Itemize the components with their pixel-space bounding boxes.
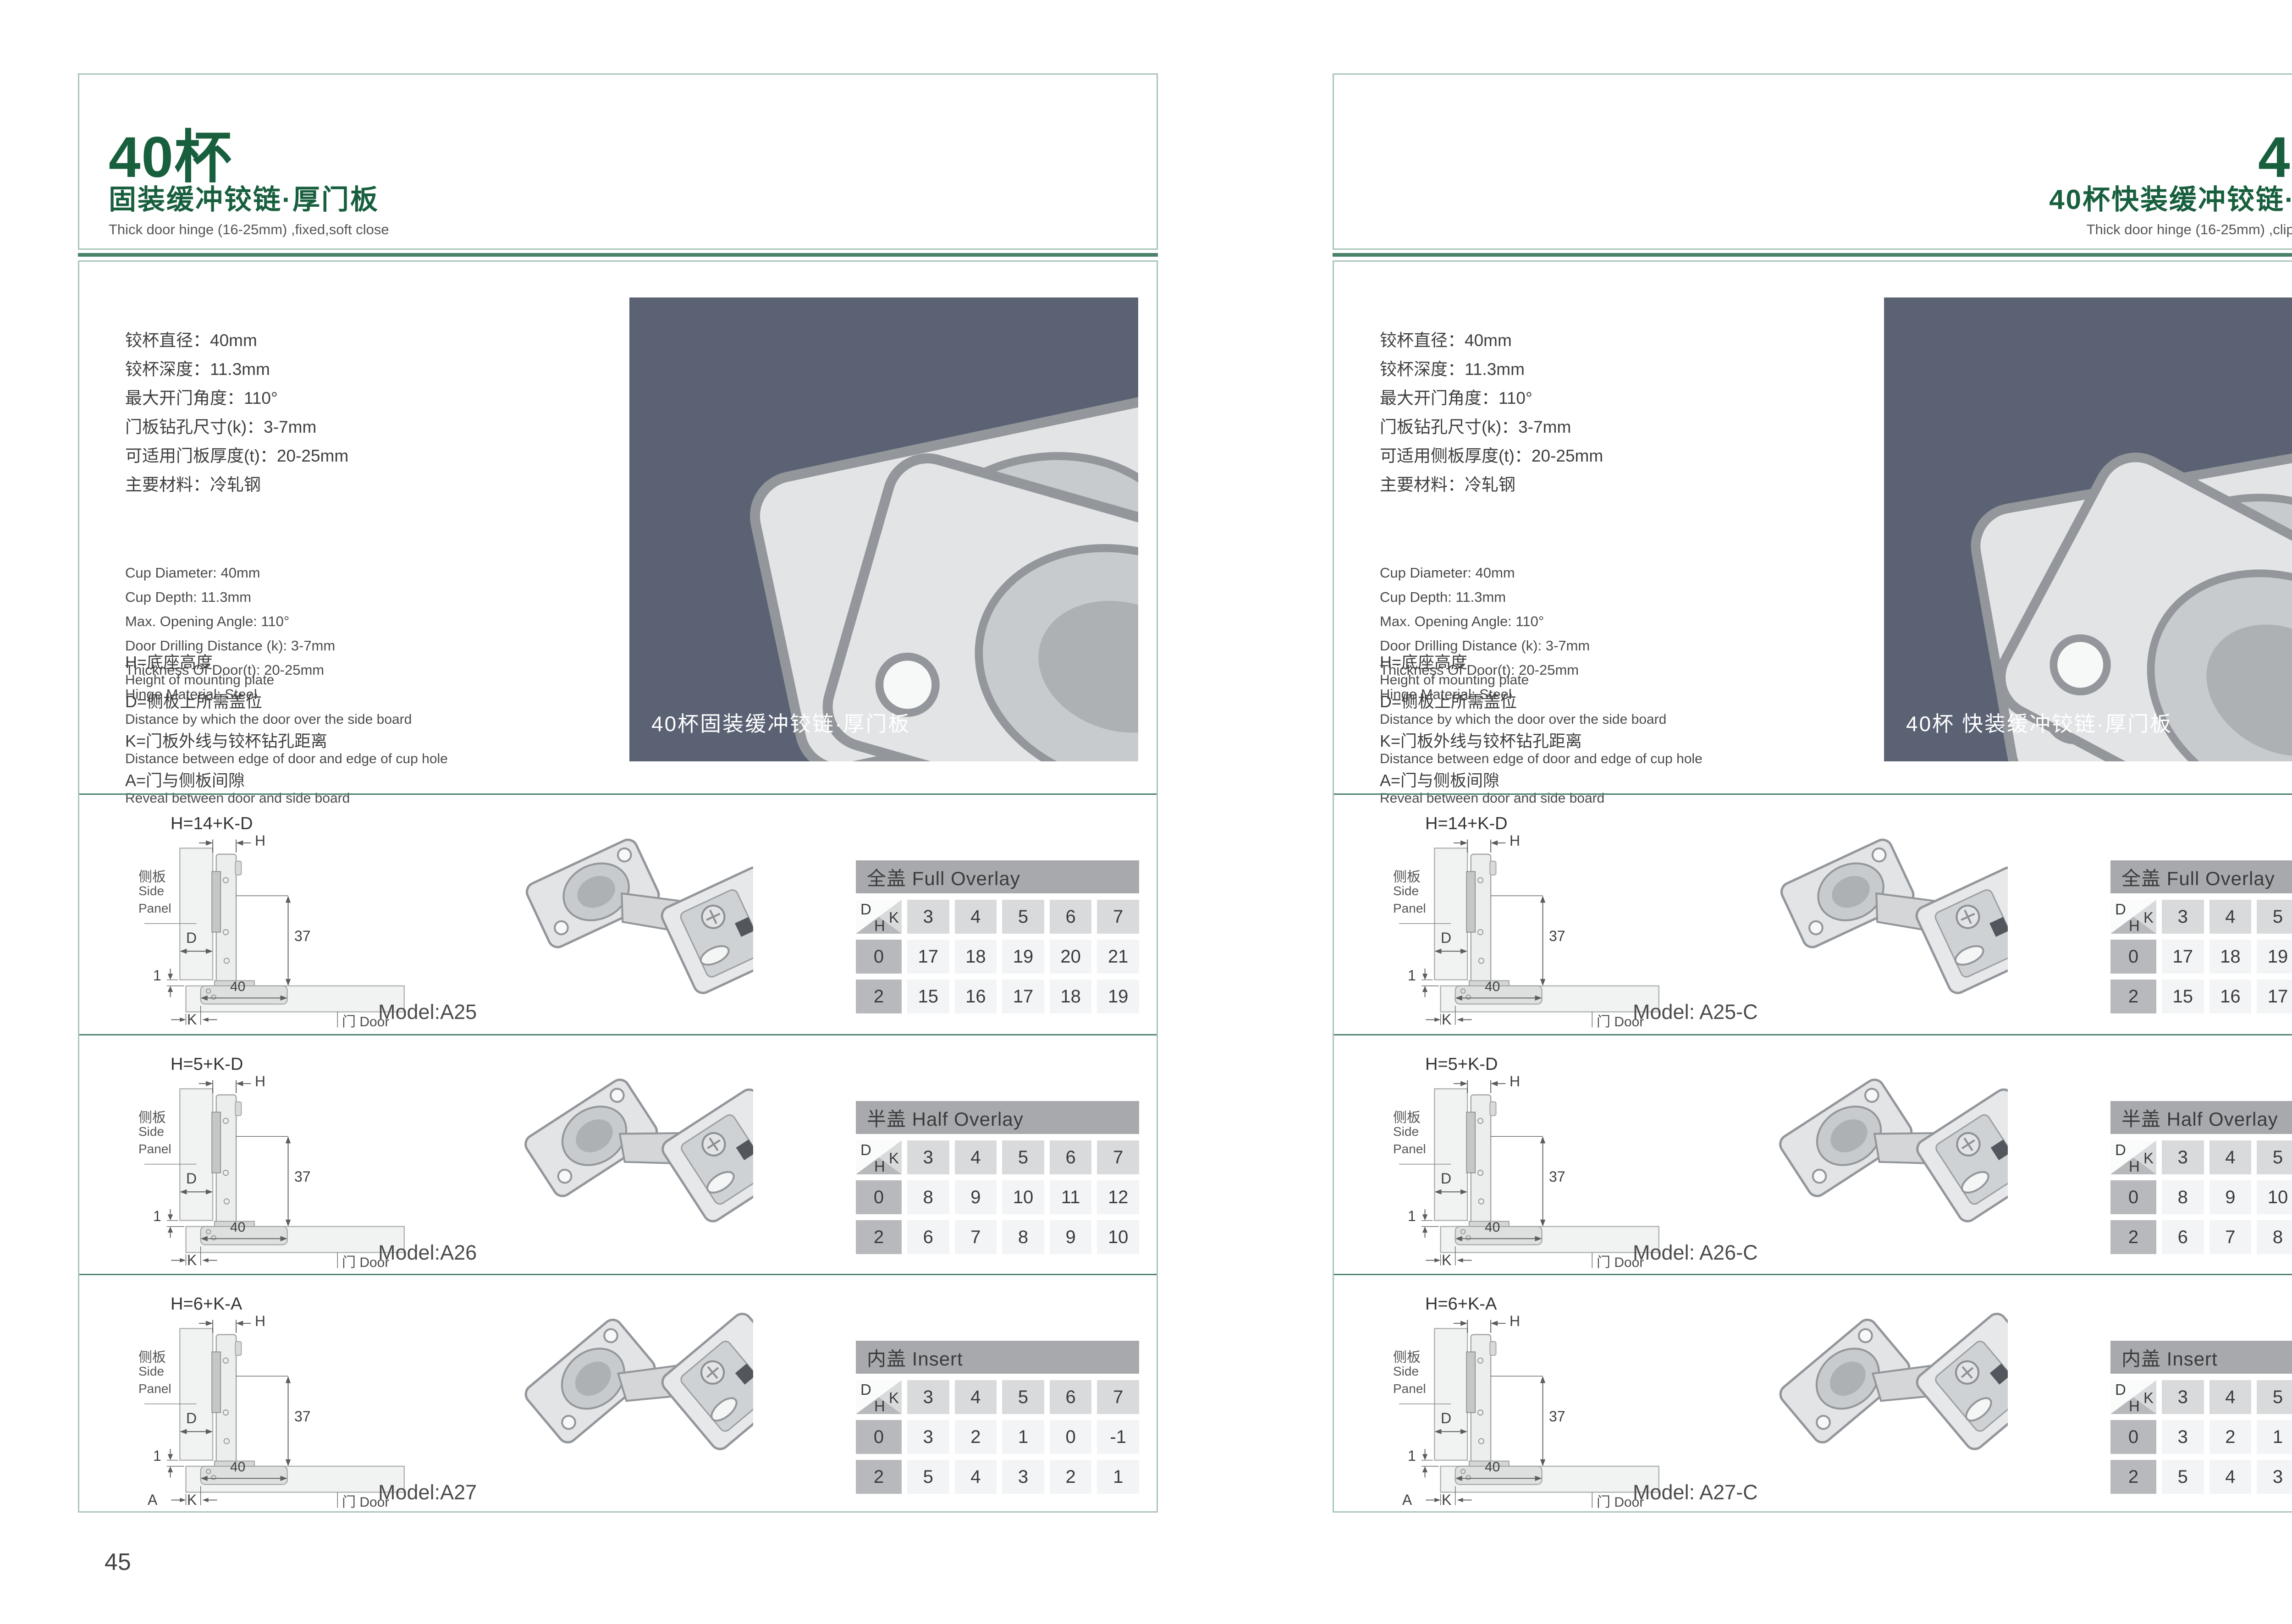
dim-d-label: D [1441,1410,1451,1427]
dim-h-label: H [1510,832,1520,849]
table-title: 全盖 Full Overlay [856,860,1139,893]
table-title: 全盖 Full Overlay [2110,860,2292,893]
table-value-cell: 18 [1050,980,1092,1013]
model-label: Model: A25-C [1633,1000,1758,1024]
table-value-cell: 2 [1050,1460,1092,1494]
legend-description: Height of mounting plate [125,672,620,688]
spec-line-cn: 最大开门角度：110° [1380,384,1603,413]
side-panel-label-en1: Side [138,884,164,898]
table-row-label: 0 [2110,940,2156,974]
spec-line-cn: 主要材料：冷轧钢 [1380,470,1603,499]
corner-k-label: K [889,909,899,926]
page-content: 铰杯直径：40mm铰杯深度：11.3mm最大开门角度：110°门板钻孔尺寸(k)… [1333,260,2292,1513]
dimension-legend: H=底座高度Height of mounting plateD=侧板上所需盖位D… [125,649,620,807]
table-value-cell: 21 [1097,940,1139,974]
dim-k-label: K [1442,1011,1451,1028]
product-row: H=14+K-D H 37 D 1 40 K 门 Door 侧板 Side Pa… [79,795,1157,1034]
dim-37-label: 37 [294,1408,311,1425]
header-rule [1333,253,2292,257]
table-value-cell: 1 [1097,1460,1139,1494]
table-row-label: 0 [856,940,902,974]
table-value-cell: 20 [1050,940,1092,974]
table-col-header: 7 [1097,900,1139,934]
corner-h-label: H [874,1158,885,1175]
side-panel-label-en1: Side [138,1124,164,1139]
product-photo: 40杯 快装缓冲铰链·厚门板 [1884,297,2292,761]
dim-1-label: 1 [153,1448,161,1464]
side-panel-label-en2: Panel [1393,1142,1426,1156]
table-value-cell: 8 [2162,1180,2204,1214]
legend-term: D=侧板上所需盖位 [125,693,620,711]
table-row-label: 2 [856,980,902,1013]
table-row-label: 0 [856,1180,902,1214]
dim-37-label: 37 [1549,1168,1565,1185]
table-col-header: 7 [1097,1380,1139,1414]
table-value-cell: 6 [907,1220,949,1254]
dim-h-label: H [255,832,265,849]
page-number: 45 [105,1548,131,1576]
diagram-formula: H=5+K-D [171,1055,243,1074]
side-panel-label-cn: 侧板 [138,865,166,886]
photo-caption: 40杯固装缓冲铰链·厚门板 [651,707,910,738]
side-panel-label-cn: 侧板 [138,1346,166,1366]
legend-term: K=门板外线与铰杯钻孔距离 [125,732,620,750]
table-corner-cell: DKH [856,1140,902,1174]
dim-d-label: D [1441,1170,1451,1187]
side-panel-label-en1: Side [1393,1124,1419,1139]
table-value-cell: 4 [955,1460,997,1494]
dim-1-label: 1 [1408,1208,1416,1225]
table-row-label: 2 [856,1220,902,1254]
table-value-cell: 17 [2257,980,2292,1013]
spec-line-cn: 可适用门板厚度(t)：20-25mm [125,441,348,470]
table-value-cell: 7 [2209,1220,2252,1254]
dim-37-label: 37 [294,928,311,945]
table-value-cell: 0 [1050,1420,1092,1454]
dim-40-label: 40 [230,979,245,995]
table-value-cell: 3 [907,1420,949,1454]
table-row-label: 2 [2110,980,2156,1013]
page-subtitle-cn: 40杯快装缓冲铰链·厚门板 [1363,177,2292,217]
table-corner-cell: DKH [2110,1380,2156,1414]
hinge-product-illustration [485,805,753,1009]
page-subtitle-cn: 固装缓冲铰链·厚门板 [109,177,1127,217]
table-value-cell: 15 [907,980,949,1013]
corner-d-label: D [860,1381,871,1398]
overlay-table: 半盖 Half OverlayDKH345670891011122678910 [2110,1101,2292,1254]
hinge-product-illustration [1740,1046,2008,1250]
table-value-cell: 3 [1002,1460,1044,1494]
model-label: Model: A26-C [1633,1241,1758,1265]
table-grid: DKH345670171819202121516171819 [856,900,1139,1013]
table-col-header: 5 [2257,900,2292,934]
table-col-header: 3 [2162,1380,2204,1414]
dimension-legend: H=底座高度Height of mounting plateD=侧板上所需盖位D… [1380,649,1875,807]
overlay-table: 内盖 InsertDKH3456703210-1254321 [2110,1341,2292,1494]
table-value-cell: 4 [2209,1460,2252,1494]
table-value-cell: 18 [955,940,997,974]
table-value-cell: 16 [955,980,997,1013]
dim-d-label: D [186,930,197,947]
dim-k-label: K [187,1252,197,1269]
table-value-cell: 19 [1097,980,1139,1013]
hinge-product-illustration [485,1285,753,1489]
legend-term: A=门与侧板间隙 [125,771,620,790]
diagram-formula: H=14+K-D [1425,814,1508,834]
table-value-cell: 17 [2162,940,2204,974]
table-row-label: 2 [856,1460,902,1494]
legend-description: Distance between edge of door and edge o… [1380,750,1875,767]
spec-line-cn: 铰杯深度：11.3mm [1380,355,1603,384]
specs-chinese: 铰杯直径：40mm铰杯深度：11.3mm最大开门角度：110°门板钻孔尺寸(k)… [125,326,348,499]
table-value-cell: 17 [1002,980,1044,1013]
photo-caption: 40杯 快装缓冲铰链·厚门板 [1906,707,2172,738]
dim-40-label: 40 [1485,1459,1500,1475]
table-value-cell: -1 [1097,1420,1139,1454]
table-title: 内盖 Insert [856,1341,1139,1374]
spec-line-cn: 铰杯深度：11.3mm [125,355,348,384]
page-subtitle-en: Thick door hinge (16-25mm) ,fixed,soft c… [109,221,1127,238]
table-value-cell: 10 [1002,1180,1044,1214]
table-value-cell: 7 [955,1220,997,1254]
dim-40-label: 40 [1485,1220,1500,1235]
overlay-table: 全盖 Full OverlayDKH3456701718192021215161… [2110,860,2292,1013]
spec-line-cn: 门板钻孔尺寸(k)：3-7mm [125,413,348,441]
diagram-formula: H=6+K-A [1425,1294,1497,1314]
spec-line-cn: 可适用侧板厚度(t)：20-25mm [1380,441,1603,470]
table-value-cell: 2 [2209,1420,2252,1454]
table-col-header: 4 [2209,1380,2252,1414]
product-row: H=6+K-A H 37 D 1 40 K A 门 Door 侧板 Side P… [79,1275,1157,1514]
corner-d-label: D [2115,1141,2126,1159]
table-value-cell: 8 [2257,1220,2292,1254]
table-value-cell: 19 [2257,940,2292,974]
dim-h-label: H [1510,1073,1520,1090]
legend-term: H=底座高度 [125,653,620,672]
spec-line-cn: 铰杯直径：40mm [125,326,348,355]
table-col-header: 4 [955,1380,997,1414]
corner-k-label: K [889,1389,899,1407]
dim-40-label: 40 [1485,979,1500,995]
table-col-header: 6 [1050,900,1092,934]
overlay-table: 全盖 Full OverlayDKH3456701718192021215161… [856,860,1139,1013]
corner-h-label: H [874,1398,885,1415]
side-panel-label-en2: Panel [138,1142,171,1156]
model-label: Model:A27 [378,1481,477,1504]
dim-40-label: 40 [230,1459,245,1475]
dim-k-label: K [187,1011,197,1028]
dim-h-label: H [255,1313,265,1330]
side-panel-label-cn: 侧板 [1393,1106,1421,1126]
table-value-cell: 11 [1050,1180,1092,1214]
spec-line-en: Cup Depth: 11.3mm [1380,585,1590,609]
dim-k-label: K [1442,1492,1451,1508]
corner-k-label: K [889,1150,899,1167]
table-value-cell: 5 [2162,1460,2204,1494]
page-header: 40杯 40杯快装缓冲铰链·厚门板 Thick door hinge (16-2… [1333,73,2292,250]
corner-k-label: K [2143,1150,2154,1167]
model-label: Model:A25 [378,1000,477,1024]
dim-40-label: 40 [230,1220,245,1235]
legend-description: Height of mounting plate [1380,672,1875,688]
side-panel-label-en2: Panel [138,1382,171,1396]
table-row-label: 0 [856,1420,902,1454]
table-grid: DKH345670891011122678910 [856,1140,1139,1254]
model-label: Model:A26 [378,1241,477,1265]
catalog-page-left: 40杯 固装缓冲铰链·厚门板 Thick door hinge (16-25mm… [78,73,1158,1513]
dim-h-label: H [255,1073,265,1090]
table-value-cell: 12 [1097,1180,1139,1214]
spec-line-en: Max. Opening Angle: 110° [125,609,335,633]
side-panel-label-en1: Side [138,1364,164,1379]
product-row: H=6+K-A H 37 D 1 40 K A 门 Door 侧板 Side P… [1334,1275,2292,1514]
page-header-inner: 40杯 固装缓冲铰链·厚门板 Thick door hinge (16-25mm… [109,75,1127,248]
table-col-header: 3 [907,1140,949,1174]
side-panel-label-cn: 侧板 [1393,1346,1421,1366]
diagram-formula: H=5+K-D [1425,1055,1498,1074]
table-col-header: 4 [955,900,997,934]
table-value-cell: 10 [2257,1180,2292,1214]
product-photo: 40杯固装缓冲铰链·厚门板 [629,297,1138,761]
table-row-label: 0 [2110,1420,2156,1454]
table-col-header: 3 [907,1380,949,1414]
table-value-cell: 3 [2257,1460,2292,1494]
dim-1-label: 1 [1408,967,1416,984]
table-value-cell: 18 [2209,940,2252,974]
table-corner-cell: DKH [2110,1140,2156,1174]
dim-k-label: K [187,1492,197,1508]
diagram-formula: H=14+K-D [171,814,253,834]
table-value-cell: 9 [1050,1220,1092,1254]
table-row-label: 2 [2110,1460,2156,1494]
table-col-header: 4 [2209,900,2252,934]
table-col-header: 3 [2162,1140,2204,1174]
dim-k-label: K [1442,1252,1451,1269]
legend-description: Distance between edge of door and edge o… [125,750,620,767]
table-corner-cell: DKH [2110,900,2156,934]
dim-1-label: 1 [153,1208,161,1225]
side-panel-label-en1: Side [1393,1364,1419,1379]
table-col-header: 4 [955,1140,997,1174]
table-value-cell: 8 [907,1180,949,1214]
model-label: Model: A27-C [1633,1481,1758,1504]
legend-term: H=底座高度 [1380,653,1875,672]
spec-line-en: Cup Diameter: 40mm [1380,561,1590,585]
specs-chinese: 铰杯直径：40mm铰杯深度：11.3mm最大开门角度：110°门板钻孔尺寸(k)… [1380,326,1603,499]
table-col-header: 6 [1050,1140,1092,1174]
dim-37-label: 37 [1549,1408,1565,1425]
corner-k-label: K [2143,1389,2154,1407]
table-col-header: 6 [1050,1380,1092,1414]
spec-line-en: Cup Diameter: 40mm [125,561,335,585]
dim-a-label: A [1402,1492,1412,1508]
corner-d-label: D [2115,901,2126,918]
product-row: H=5+K-D H 37 D 1 40 K 门 Door 侧板 Side Pan… [79,1035,1157,1275]
dim-1-label: 1 [1408,1448,1416,1464]
spec-line-cn: 最大开门角度：110° [125,384,348,413]
dim-a-label: A [148,1492,157,1508]
table-grid: DKH3456703210-1254321 [856,1380,1139,1494]
corner-h-label: H [874,917,885,935]
table-value-cell: 19 [1002,940,1044,974]
catalog-page-right: 40杯 40杯快装缓冲铰链·厚门板 Thick door hinge (16-2… [1333,73,2292,1513]
spec-line-cn: 门板钻孔尺寸(k)：3-7mm [1380,413,1603,441]
spec-line-en: Max. Opening Angle: 110° [1380,609,1590,633]
page-header: 40杯 固装缓冲铰链·厚门板 Thick door hinge (16-25mm… [78,73,1158,250]
page-header-inner: 40杯 40杯快装缓冲铰链·厚门板 Thick door hinge (16-2… [1363,75,2292,248]
table-col-header: 7 [1097,1140,1139,1174]
table-value-cell: 10 [1097,1220,1139,1254]
table-value-cell: 5 [907,1460,949,1494]
corner-k-label: K [2143,909,2154,926]
table-value-cell: 8 [1002,1220,1044,1254]
table-corner-cell: DKH [856,1380,902,1414]
table-corner-cell: DKH [856,900,902,934]
dim-d-label: D [186,1410,197,1427]
table-title: 半盖 Half Overlay [856,1101,1139,1134]
dim-37-label: 37 [294,1168,311,1185]
spec-line-cn: 铰杯直径：40mm [1380,326,1603,355]
table-value-cell: 1 [2257,1420,2292,1454]
header-rule [78,253,1158,257]
product-row: H=14+K-D H 37 D 1 40 K 门 Door 侧板 Side Pa… [1334,795,2292,1034]
hinge-photo-illustration [1884,297,2292,761]
hinge-product-illustration [485,1046,753,1250]
corner-d-label: D [2115,1381,2126,1398]
corner-d-label: D [860,901,871,918]
corner-h-label: H [2129,917,2140,935]
page-subtitle-en: Thick door hinge (16-25mm) ,clip on ,sof… [1363,221,2292,238]
spec-line-cn: 主要材料：冷轧钢 [125,470,348,499]
hinge-product-illustration [1740,805,2008,1009]
legend-term: A=门与侧板间隙 [1380,771,1875,790]
hinge-photo-illustration [629,297,1138,761]
table-value-cell: 9 [2209,1180,2252,1214]
table-row-label: 2 [2110,1220,2156,1254]
product-row: H=5+K-D H 37 D 1 40 K 门 Door 侧板 Side Pan… [1334,1035,2292,1275]
table-value-cell: 2 [955,1420,997,1454]
table-title: 内盖 Insert [2110,1341,2292,1374]
legend-description: Distance by which the door over the side… [125,711,620,728]
diagram-formula: H=6+K-A [171,1294,242,1314]
table-col-header: 3 [2162,900,2204,934]
side-panel-label-cn: 侧板 [1393,865,1421,886]
table-col-header: 5 [2257,1380,2292,1414]
table-value-cell: 1 [1002,1420,1044,1454]
legend-term: K=门板外线与铰杯钻孔距离 [1380,732,1875,750]
table-value-cell: 3 [2162,1420,2204,1454]
catalog-spread: 40杯 固装缓冲铰链·厚门板 Thick door hinge (16-25mm… [0,0,2292,1624]
table-value-cell: 16 [2209,980,2252,1013]
table-col-header: 5 [1002,900,1044,934]
table-col-header: 4 [2209,1140,2252,1174]
dim-37-label: 37 [1549,928,1565,945]
side-panel-label-en2: Panel [138,901,171,916]
corner-d-label: D [860,1141,871,1159]
table-row-label: 0 [2110,1180,2156,1214]
side-panel-label-cn: 侧板 [138,1106,166,1126]
spec-line-en: Cup Depth: 11.3mm [125,585,335,609]
side-panel-label-en2: Panel [1393,901,1426,916]
table-col-header: 3 [907,900,949,934]
corner-h-label: H [2129,1398,2140,1415]
legend-description: Distance by which the door over the side… [1380,711,1875,728]
table-value-cell: 15 [2162,980,2204,1013]
table-col-header: 5 [1002,1380,1044,1414]
page-content: 铰杯直径：40mm铰杯深度：11.3mm最大开门角度：110°门板钻孔尺寸(k)… [78,260,1158,1513]
table-value-cell: 9 [955,1180,997,1214]
overlay-table: 半盖 Half OverlayDKH345670891011122678910 [856,1101,1139,1254]
dim-1-label: 1 [153,967,161,984]
dim-d-label: D [1441,930,1451,947]
table-value-cell: 17 [907,940,949,974]
dim-h-label: H [1510,1313,1520,1330]
table-value-cell: 6 [2162,1220,2204,1254]
side-panel-label-en1: Side [1393,884,1419,898]
table-col-header: 5 [2257,1140,2292,1174]
legend-term: D=侧板上所需盖位 [1380,693,1875,711]
table-grid: DKH3456703210-1254321 [2110,1380,2292,1494]
table-grid: DKH345670891011122678910 [2110,1140,2292,1254]
dim-d-label: D [186,1170,197,1187]
table-title: 半盖 Half Overlay [2110,1101,2292,1134]
corner-h-label: H [2129,1158,2140,1175]
table-grid: DKH345670171819202121516171819 [2110,900,2292,1013]
side-panel-label-en2: Panel [1393,1382,1426,1396]
hinge-product-illustration [1740,1285,2008,1489]
overlay-table: 内盖 InsertDKH3456703210-1254321 [856,1341,1139,1494]
table-col-header: 5 [1002,1140,1044,1174]
